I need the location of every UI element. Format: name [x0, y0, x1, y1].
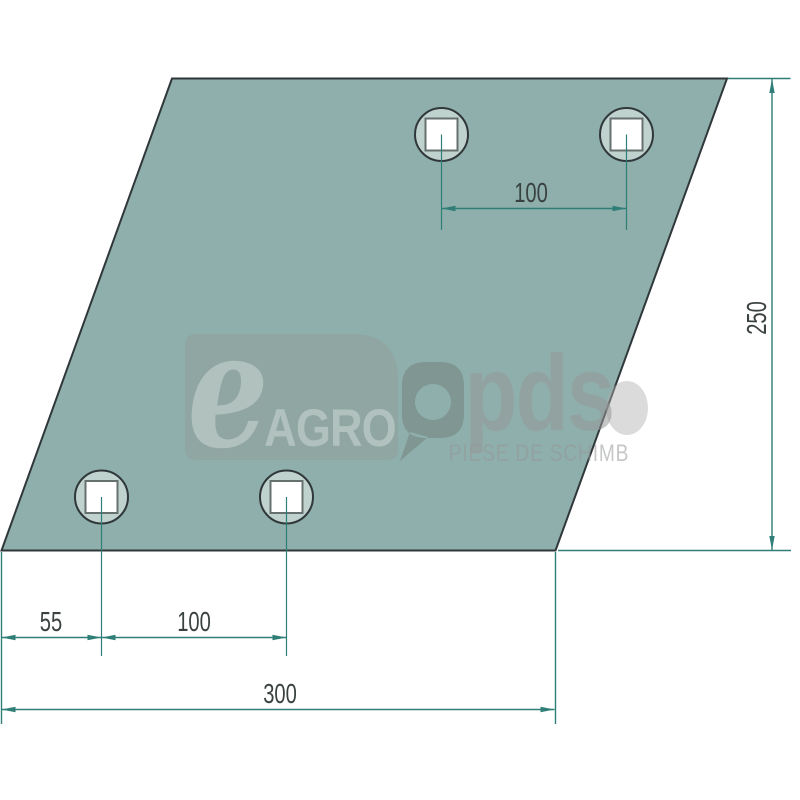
watermark-pds-text: pds — [465, 332, 614, 453]
technical-drawing: e AGRO pds PIESE DE SCHIMB — [0, 0, 800, 800]
dim-edge-to-hole: 55 — [2, 607, 102, 640]
dim-55-arrow-left-icon — [2, 635, 16, 640]
watermark-e-letter: e — [187, 297, 268, 485]
dim-label-height: 250 — [742, 301, 773, 335]
dim-bottom-hole-spacing: 100 — [102, 607, 287, 640]
dim-height-arrow-top-icon — [769, 79, 774, 93]
hole-bottom-right — [260, 471, 313, 657]
dim-label-top-hole-spacing: 100 — [514, 178, 548, 209]
dim-width: 300 — [2, 679, 555, 712]
dim-label-bottom-hole-spacing: 100 — [177, 607, 211, 638]
dim-bottom-100-arrow-left-icon — [102, 635, 116, 640]
dim-label-width: 300 — [263, 679, 297, 710]
dim-label-edge-to-hole: 55 — [40, 607, 62, 638]
dim-bottom-100-arrow-right-icon — [273, 635, 287, 640]
dim-300-arrow-left-icon — [2, 707, 16, 712]
dim-height-arrow-bottom-icon — [769, 536, 774, 550]
drawing-canvas: e AGRO pds PIESE DE SCHIMB — [0, 0, 800, 800]
watermark-tagline-text: PIESE DE SCHIMB — [449, 439, 629, 467]
hole-bottom-left — [75, 471, 128, 657]
dim-300-arrow-right-icon — [541, 707, 555, 712]
dim-55-arrow-right-icon — [88, 635, 102, 640]
watermark-agro-text: AGRO — [264, 399, 396, 458]
